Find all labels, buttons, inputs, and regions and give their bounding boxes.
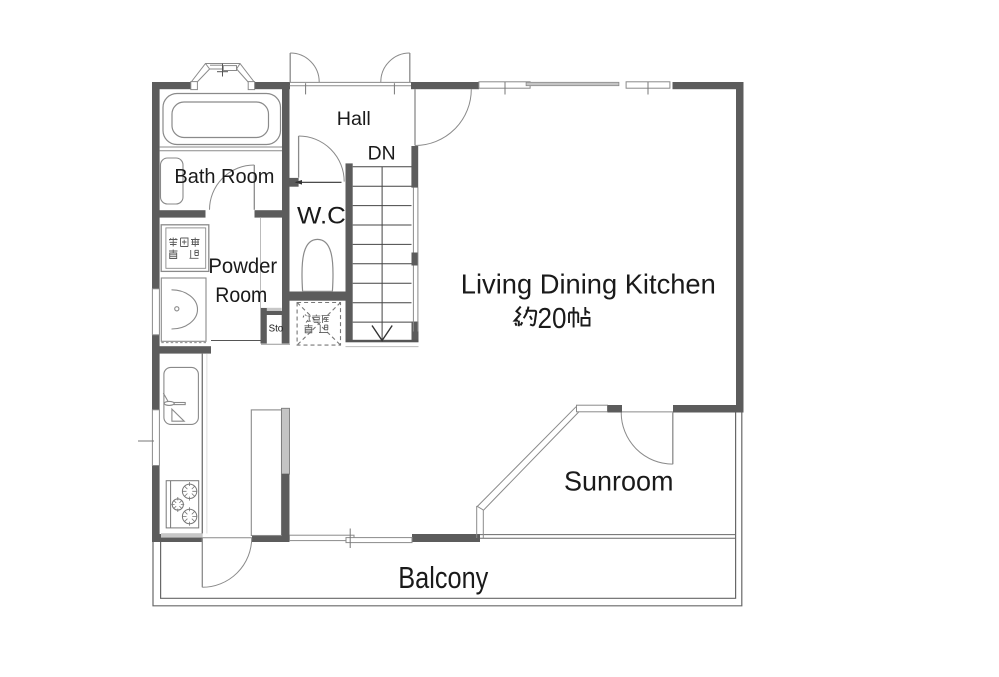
svg-text:Bath Room: Bath Room — [174, 165, 274, 188]
svg-text:Balcony: Balcony — [398, 560, 488, 595]
svg-text:Powder: Powder — [208, 254, 277, 278]
svg-text:Living Dining Kitchen: Living Dining Kitchen — [461, 269, 716, 300]
svg-text:20: 20 — [538, 303, 567, 335]
svg-text:Hall: Hall — [337, 109, 371, 130]
svg-text:DN: DN — [368, 144, 396, 165]
svg-text:Room: Room — [215, 283, 267, 307]
svg-text:Sto: Sto — [269, 322, 284, 334]
svg-text:Sunroom: Sunroom — [564, 466, 674, 497]
svg-text:W.C: W.C — [297, 202, 346, 229]
